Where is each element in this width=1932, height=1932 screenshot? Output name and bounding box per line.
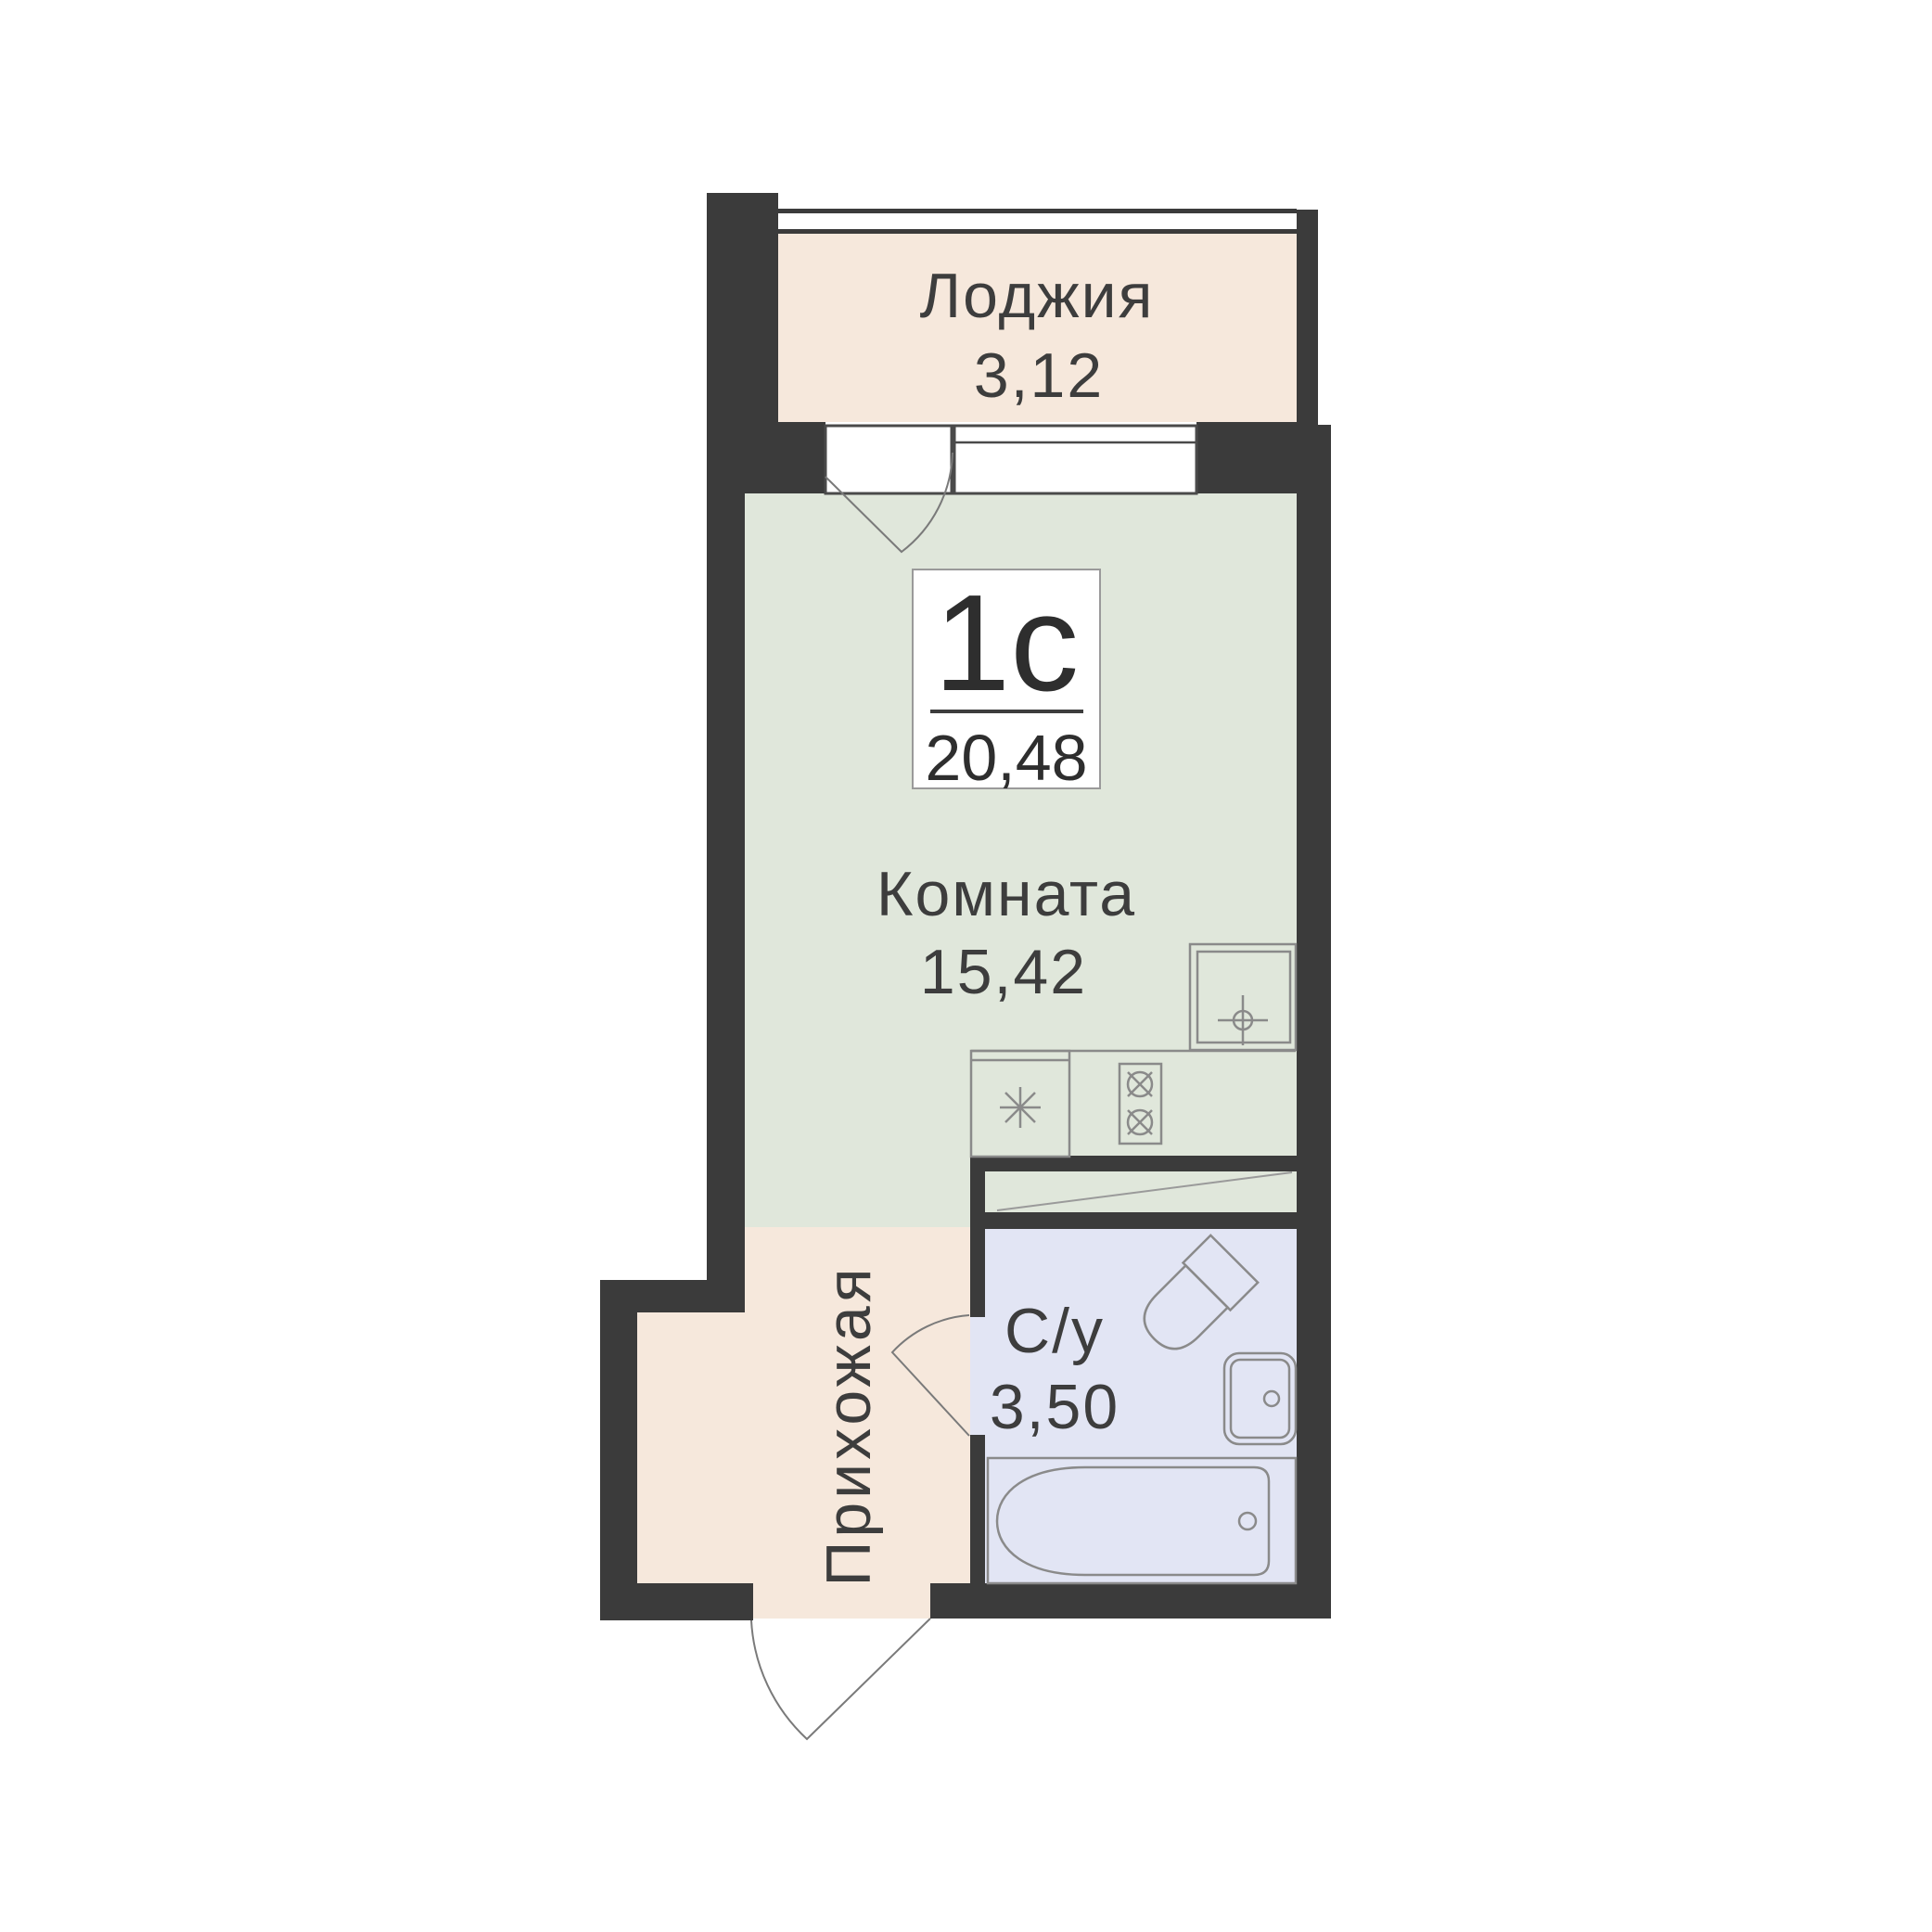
hallway-label: Прихожая [813, 1264, 884, 1586]
bathroom-area: 3,50 [990, 1372, 1120, 1442]
balcony-door-opening [825, 426, 952, 493]
wall-outer-right [1297, 425, 1331, 1619]
wall-below-niche [970, 1212, 1297, 1229]
loggia-label: Лоджия [920, 261, 1155, 331]
wall-bottom-left [600, 1583, 753, 1620]
window [954, 426, 1196, 493]
wall-loggia-right [1297, 210, 1318, 425]
wall-loggia-left-pier [707, 193, 778, 427]
wall-bottom-right [930, 1583, 1331, 1619]
living-room-label: Комната [876, 859, 1136, 929]
bathroom-door-opening-floor [970, 1317, 985, 1435]
unit-total-area: 20,48 [925, 722, 1087, 794]
wall-outer-left-lower [600, 1280, 637, 1620]
unit-type-label: 1с [934, 567, 1079, 720]
wall-outer-left-upper [707, 493, 745, 1312]
loggia-glazing-outer-line [778, 209, 1297, 213]
entry-door-opening-floor [753, 1583, 930, 1619]
living-room-area: 15,42 [920, 937, 1087, 1007]
wall-bathroom-left-upper [970, 1156, 985, 1317]
unit-badge: 1с 20,48 [913, 567, 1100, 794]
wall-balcony-band-left [707, 422, 825, 493]
bathroom-label: С/у [1004, 1296, 1105, 1366]
floor-plan-page: 1с 20,48 Лоджия 3,12 Комната 15,42 Прихо… [0, 0, 1932, 1932]
floor-plan: 1с 20,48 Лоджия 3,12 Комната 15,42 Прихо… [0, 0, 1932, 1932]
loggia-area: 3,12 [974, 340, 1104, 411]
wall-bathroom-left-lower [970, 1435, 985, 1585]
wall-above-niche [970, 1156, 1297, 1171]
loggia-glazing-inner-line [778, 229, 1297, 234]
wall-balcony-band-right [1196, 422, 1297, 493]
entry-door-swing-icon [751, 1619, 930, 1739]
